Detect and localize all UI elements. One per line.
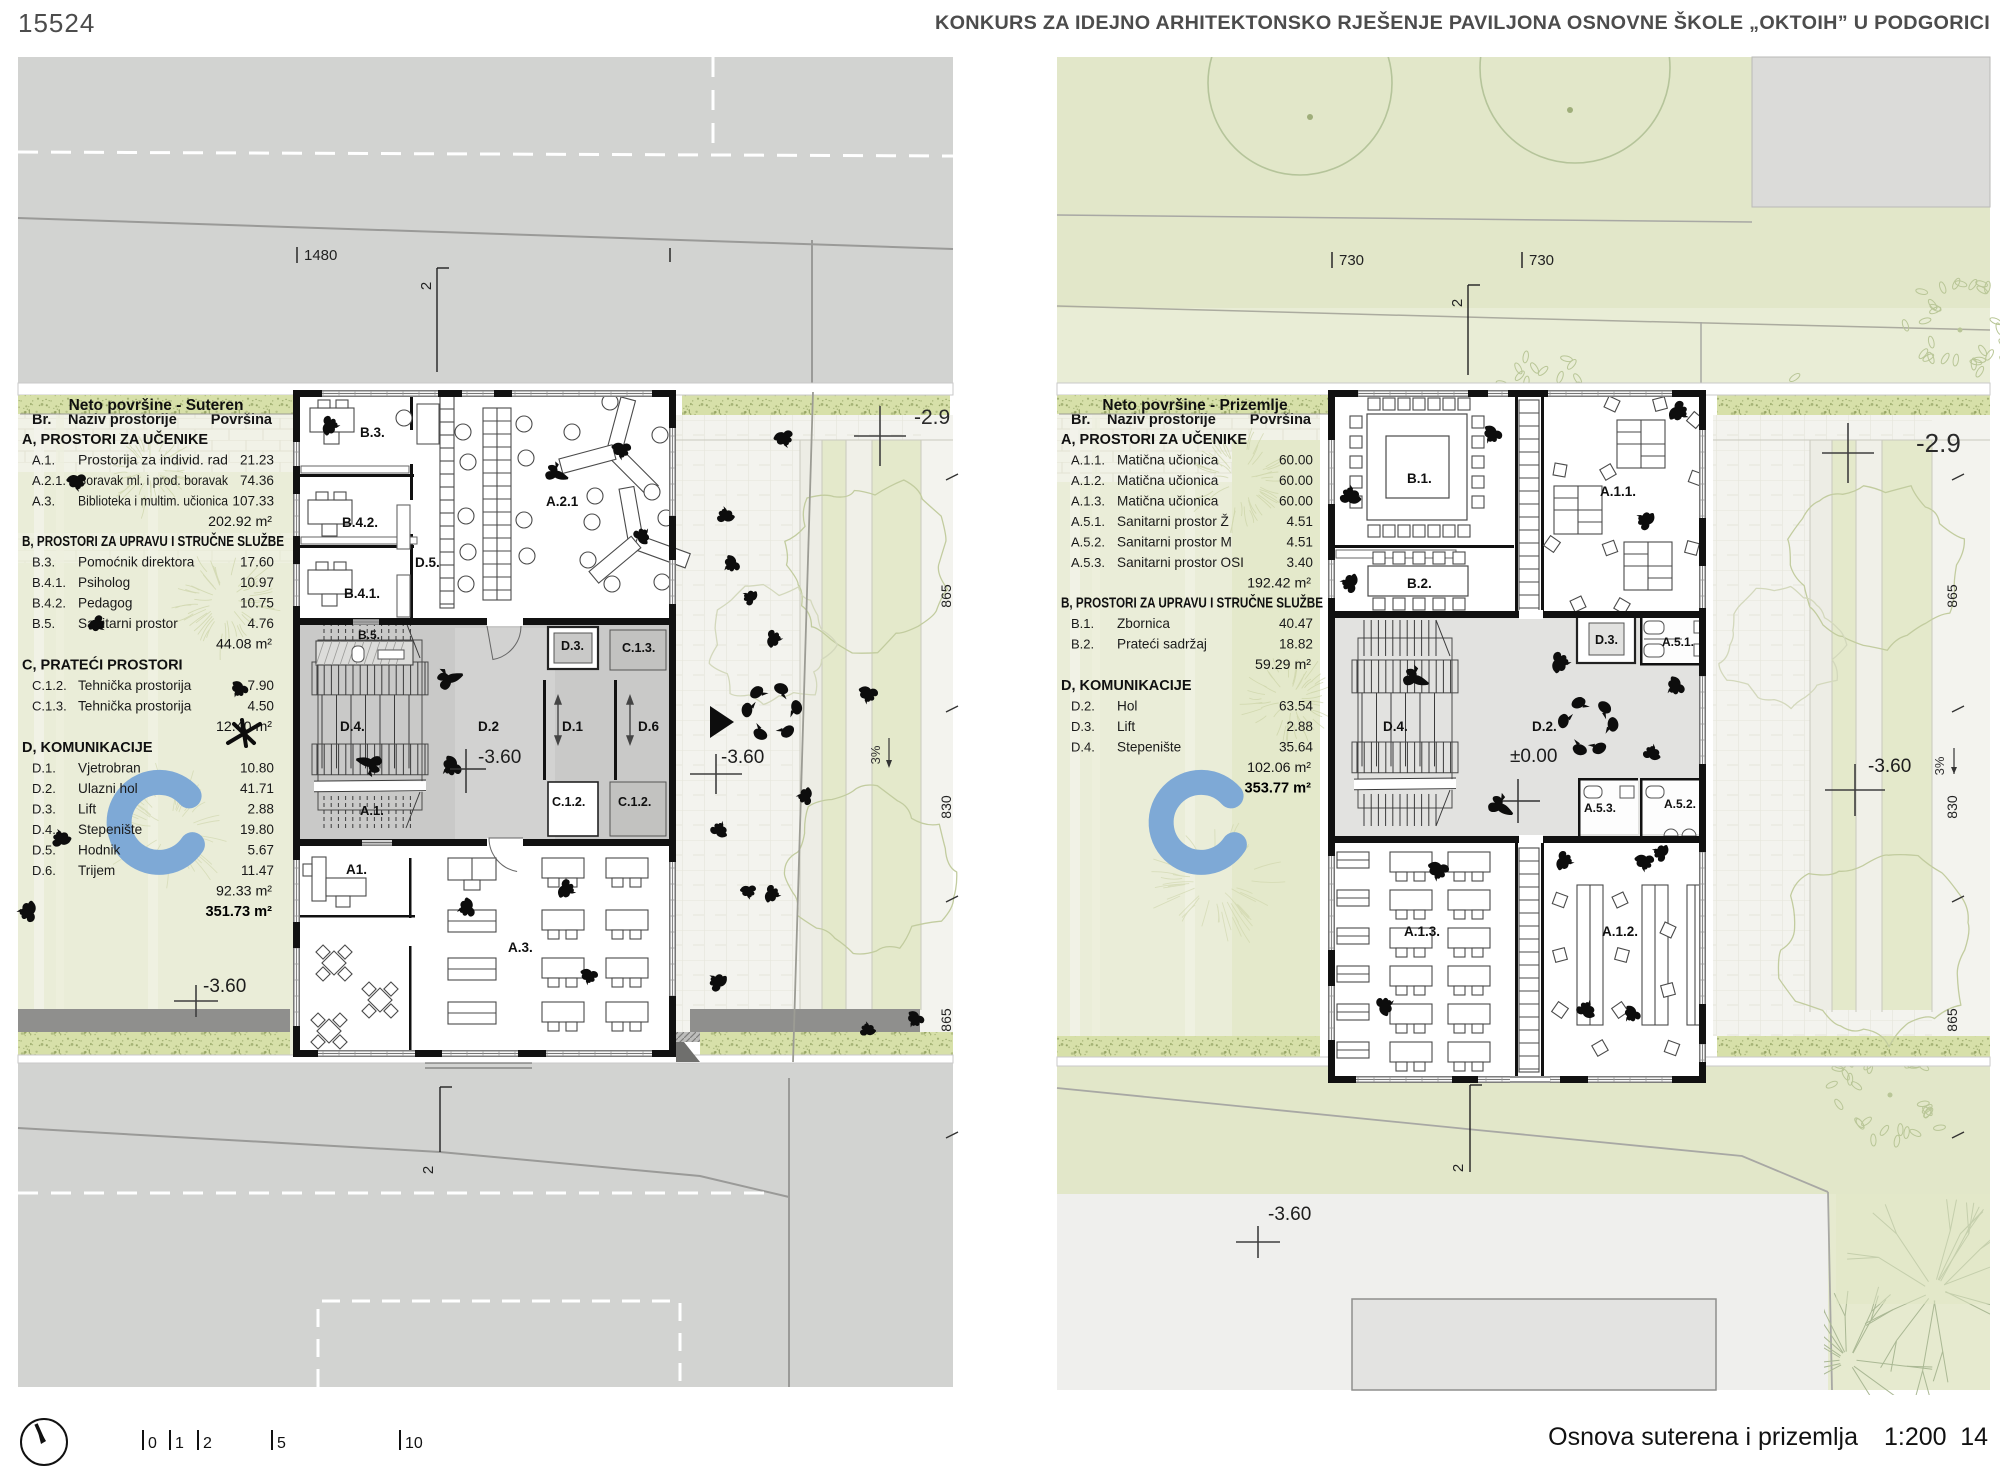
svg-text:C, PRATEĆI PROSTORI: C, PRATEĆI PROSTORI	[22, 656, 183, 674]
svg-text:59.29 m²: 59.29 m²	[1255, 657, 1311, 673]
svg-text:10.80: 10.80	[240, 761, 274, 776]
svg-text:A.5.3.: A.5.3.	[1071, 555, 1105, 570]
svg-text:C.1.2.: C.1.2.	[552, 795, 585, 809]
svg-text:D.1: D.1	[562, 719, 584, 734]
svg-text:865: 865	[938, 1008, 954, 1032]
svg-text:C.1.3.: C.1.3.	[32, 699, 67, 714]
svg-text:Stepenište: Stepenište	[1117, 740, 1181, 755]
svg-text:830: 830	[1944, 795, 1960, 819]
svg-text:A.1.: A.1.	[32, 453, 55, 468]
svg-text:D.4.: D.4.	[1383, 719, 1408, 734]
svg-text:D.5.: D.5.	[32, 843, 56, 858]
svg-text:D.6: D.6	[638, 719, 660, 734]
svg-text:D.4.: D.4.	[340, 719, 365, 734]
svg-text:A.5.2.: A.5.2.	[1664, 797, 1696, 811]
svg-text:2: 2	[1449, 299, 1466, 307]
svg-text:B.4.1.: B.4.1.	[344, 586, 380, 601]
svg-text:4.51: 4.51	[1287, 535, 1313, 550]
svg-text:Prostorija za individ. rad: Prostorija za individ. rad	[78, 453, 228, 468]
svg-text:40.47: 40.47	[1279, 616, 1313, 631]
svg-text:60.00: 60.00	[1279, 453, 1313, 468]
svg-text:B.2.: B.2.	[1071, 637, 1094, 652]
svg-text:Lift: Lift	[1117, 719, 1135, 734]
svg-text:10.97: 10.97	[240, 575, 274, 590]
svg-text:B, PROSTORI ZA UPRAVU I STRUČN: B, PROSTORI ZA UPRAVU I STRUČNE SLUŽBE	[22, 532, 284, 550]
svg-text:Trijem: Trijem	[78, 863, 115, 878]
svg-text:17.60: 17.60	[240, 555, 274, 570]
svg-text:4.76: 4.76	[248, 616, 274, 631]
svg-text:-2.9: -2.9	[1916, 428, 1961, 458]
svg-text:-3.60: -3.60	[478, 747, 521, 768]
svg-text:Boravak ml. i prod. boravak: Boravak ml. i prod. boravak	[78, 473, 228, 488]
svg-text:B.4.2.: B.4.2.	[32, 596, 66, 611]
svg-text:Tehnička prostorija: Tehnička prostorija	[78, 699, 192, 714]
svg-text:D.3.: D.3.	[1595, 633, 1618, 647]
svg-text:60.00: 60.00	[1279, 473, 1313, 488]
svg-text:B.3.: B.3.	[360, 425, 385, 440]
svg-text:865: 865	[1944, 584, 1960, 608]
svg-text:11.47: 11.47	[241, 863, 274, 878]
svg-text:60.00: 60.00	[1279, 494, 1313, 509]
svg-text:A, PROSTORI ZA UČENIKE: A, PROSTORI ZA UČENIKE	[1061, 430, 1247, 448]
svg-text:C.1.2.: C.1.2.	[618, 795, 651, 809]
svg-text:A.5.2.: A.5.2.	[1071, 535, 1105, 550]
svg-text:74.36: 74.36	[240, 473, 274, 488]
svg-text:D, KOMUNIKACIJE: D, KOMUNIKACIJE	[1061, 678, 1192, 694]
svg-text:15524: 15524	[18, 8, 95, 38]
svg-text:730: 730	[1339, 252, 1364, 269]
svg-text:-2.9: -2.9	[914, 406, 950, 429]
svg-text:Psiholog: Psiholog	[78, 575, 130, 590]
svg-text:18.82: 18.82	[1279, 637, 1313, 652]
svg-text:A.1.3.: A.1.3.	[1404, 924, 1440, 939]
svg-text:D.3.: D.3.	[32, 802, 56, 817]
svg-text:2: 2	[418, 282, 435, 290]
svg-text:Lift: Lift	[78, 802, 96, 817]
svg-text:A.5.1.: A.5.1.	[1662, 635, 1694, 649]
svg-text:B.5.: B.5.	[358, 628, 380, 642]
svg-text:-3.60: -3.60	[721, 747, 764, 768]
svg-text:865: 865	[938, 584, 954, 608]
svg-text:A.1.: A.1.	[360, 803, 384, 818]
svg-text:192.42 m²: 192.42 m²	[1247, 576, 1311, 592]
svg-text:Osnova suterena i prizemlja: Osnova suterena i prizemlja	[1548, 1423, 1858, 1451]
svg-text:44.08 m²: 44.08 m²	[216, 637, 272, 653]
svg-text:21.23: 21.23	[240, 453, 274, 468]
svg-text:D.5.: D.5.	[415, 555, 440, 570]
svg-text:10: 10	[405, 1435, 423, 1452]
svg-text:Zbornica: Zbornica	[1117, 616, 1170, 631]
svg-text:A.1.1.: A.1.1.	[1071, 453, 1105, 468]
svg-text:D.2.: D.2.	[1532, 719, 1557, 734]
svg-text:63.54: 63.54	[1279, 699, 1313, 714]
svg-text:2: 2	[203, 1435, 212, 1452]
svg-text:351.73 m²: 351.73 m²	[205, 904, 272, 920]
svg-text:Sanitarni prostor OSI: Sanitarni prostor OSI	[1117, 555, 1244, 570]
svg-text:Sanitarni prostor Ž: Sanitarni prostor Ž	[1117, 514, 1229, 529]
svg-text:B.5.: B.5.	[32, 616, 55, 631]
svg-text:Hol: Hol	[1117, 699, 1137, 714]
svg-text:92.33 m²: 92.33 m²	[216, 884, 272, 900]
svg-text:Sanitarni prostor M: Sanitarni prostor M	[1117, 535, 1232, 550]
svg-text:865: 865	[1944, 1008, 1960, 1032]
svg-text:3.40: 3.40	[1287, 555, 1314, 570]
svg-text:B.3.: B.3.	[32, 555, 55, 570]
svg-text:0: 0	[148, 1435, 157, 1452]
svg-text:2.88: 2.88	[1287, 719, 1313, 734]
svg-text:KONKURS ZA IDEJNO ARHITEKTONSK: KONKURS ZA IDEJNO ARHITEKTONSKO RJEŠENJE…	[935, 10, 1990, 34]
svg-text:353.77 m²: 353.77 m²	[1244, 781, 1311, 797]
svg-text:A.5.1.: A.5.1.	[1071, 514, 1105, 529]
svg-text:5.67: 5.67	[248, 843, 274, 858]
svg-text:D.6.: D.6.	[32, 863, 56, 878]
svg-text:Matična učionica: Matična učionica	[1117, 453, 1219, 468]
svg-text:2: 2	[420, 1166, 437, 1174]
svg-text:Pomoćnik direktora: Pomoćnik direktora	[78, 555, 195, 570]
svg-text:C.1.3.: C.1.3.	[622, 641, 655, 655]
svg-text:Stepenište: Stepenište	[78, 822, 142, 837]
svg-text:2.88: 2.88	[248, 802, 274, 817]
svg-text:A.1.1.: A.1.1.	[1600, 484, 1636, 499]
svg-text:Vjetrobran: Vjetrobran	[78, 761, 141, 776]
svg-text:3%: 3%	[1932, 756, 1947, 775]
svg-text:B.1.: B.1.	[1407, 471, 1432, 486]
svg-text:D.4.: D.4.	[1071, 740, 1095, 755]
svg-text:Prateći sadržaj: Prateći sadržaj	[1117, 637, 1207, 652]
svg-text:19.80: 19.80	[240, 822, 274, 837]
svg-text:1:200: 1:200	[1884, 1423, 1947, 1451]
svg-text:7.90: 7.90	[248, 678, 275, 693]
svg-text:Hodnik: Hodnik	[78, 843, 121, 858]
svg-text:35.64: 35.64	[1279, 740, 1313, 755]
svg-text:A.2.1: A.2.1	[546, 494, 579, 509]
svg-text:14: 14	[1960, 1423, 1988, 1451]
svg-text:A.3.: A.3.	[32, 494, 55, 509]
svg-text:-3.60: -3.60	[1268, 1204, 1311, 1225]
svg-text:D.1.: D.1.	[32, 761, 56, 776]
svg-text:D.2: D.2	[478, 719, 499, 734]
svg-text:A.2.1.: A.2.1.	[32, 473, 66, 488]
svg-text:D.4.: D.4.	[32, 822, 56, 837]
svg-text:Ulazni hol: Ulazni hol	[78, 781, 138, 796]
svg-text:4.50: 4.50	[248, 699, 275, 714]
svg-text:5: 5	[277, 1435, 286, 1452]
svg-text:A.1.2.: A.1.2.	[1602, 924, 1638, 939]
svg-text:B.4.2.: B.4.2.	[342, 515, 378, 530]
svg-text:Biblioteka i multim. učionica: Biblioteka i multim. učionica	[78, 494, 228, 509]
svg-text:A.1.3.: A.1.3.	[1071, 494, 1105, 509]
svg-text:4.51: 4.51	[1287, 514, 1313, 529]
svg-text:-3.60: -3.60	[203, 976, 246, 997]
svg-text:D, KOMUNIKACIJE: D, KOMUNIKACIJE	[22, 740, 153, 756]
svg-text:D.3.: D.3.	[1071, 719, 1095, 734]
svg-text:10.75: 10.75	[240, 596, 274, 611]
svg-text:A1.: A1.	[346, 862, 367, 877]
svg-text:41.71: 41.71	[240, 781, 274, 796]
svg-text:C.1.2.: C.1.2.	[32, 678, 67, 693]
svg-text:730: 730	[1529, 252, 1554, 269]
svg-text:102.06 m²: 102.06 m²	[1247, 760, 1311, 776]
svg-text:-3.60: -3.60	[1868, 756, 1911, 777]
svg-text:2: 2	[1450, 1164, 1467, 1172]
svg-text:B.2.: B.2.	[1407, 576, 1432, 591]
svg-text:3%: 3%	[868, 745, 883, 764]
svg-text:Matična učionica: Matična učionica	[1117, 473, 1219, 488]
svg-text:Tehnička prostorija: Tehnička prostorija	[78, 678, 192, 693]
svg-text:Matična učionica: Matična učionica	[1117, 494, 1219, 509]
svg-text:A.1.2.: A.1.2.	[1071, 473, 1105, 488]
svg-text:107.33: 107.33	[232, 494, 274, 509]
svg-text:1480: 1480	[304, 247, 337, 264]
svg-text:1: 1	[175, 1435, 184, 1452]
svg-text:Pedagog: Pedagog	[78, 596, 132, 611]
svg-text:±0.00: ±0.00	[1510, 746, 1557, 767]
svg-text:B.1.: B.1.	[1071, 616, 1094, 631]
svg-text:B, PROSTORI ZA UPRAVU I STRUČN: B, PROSTORI ZA UPRAVU I STRUČNE SLUŽBE	[1061, 594, 1323, 612]
svg-text:A, PROSTORI ZA UČENIKE: A, PROSTORI ZA UČENIKE	[22, 430, 208, 448]
svg-text:202.92 m²: 202.92 m²	[208, 514, 272, 530]
svg-text:A.5.3.: A.5.3.	[1584, 801, 1616, 815]
svg-text:A.3.: A.3.	[508, 940, 533, 955]
svg-text:D.2.: D.2.	[1071, 699, 1095, 714]
svg-text:830: 830	[938, 795, 954, 819]
svg-text:B.4.1.: B.4.1.	[32, 575, 66, 590]
svg-text:D.3.: D.3.	[561, 639, 584, 653]
svg-text:D.2.: D.2.	[32, 781, 56, 796]
